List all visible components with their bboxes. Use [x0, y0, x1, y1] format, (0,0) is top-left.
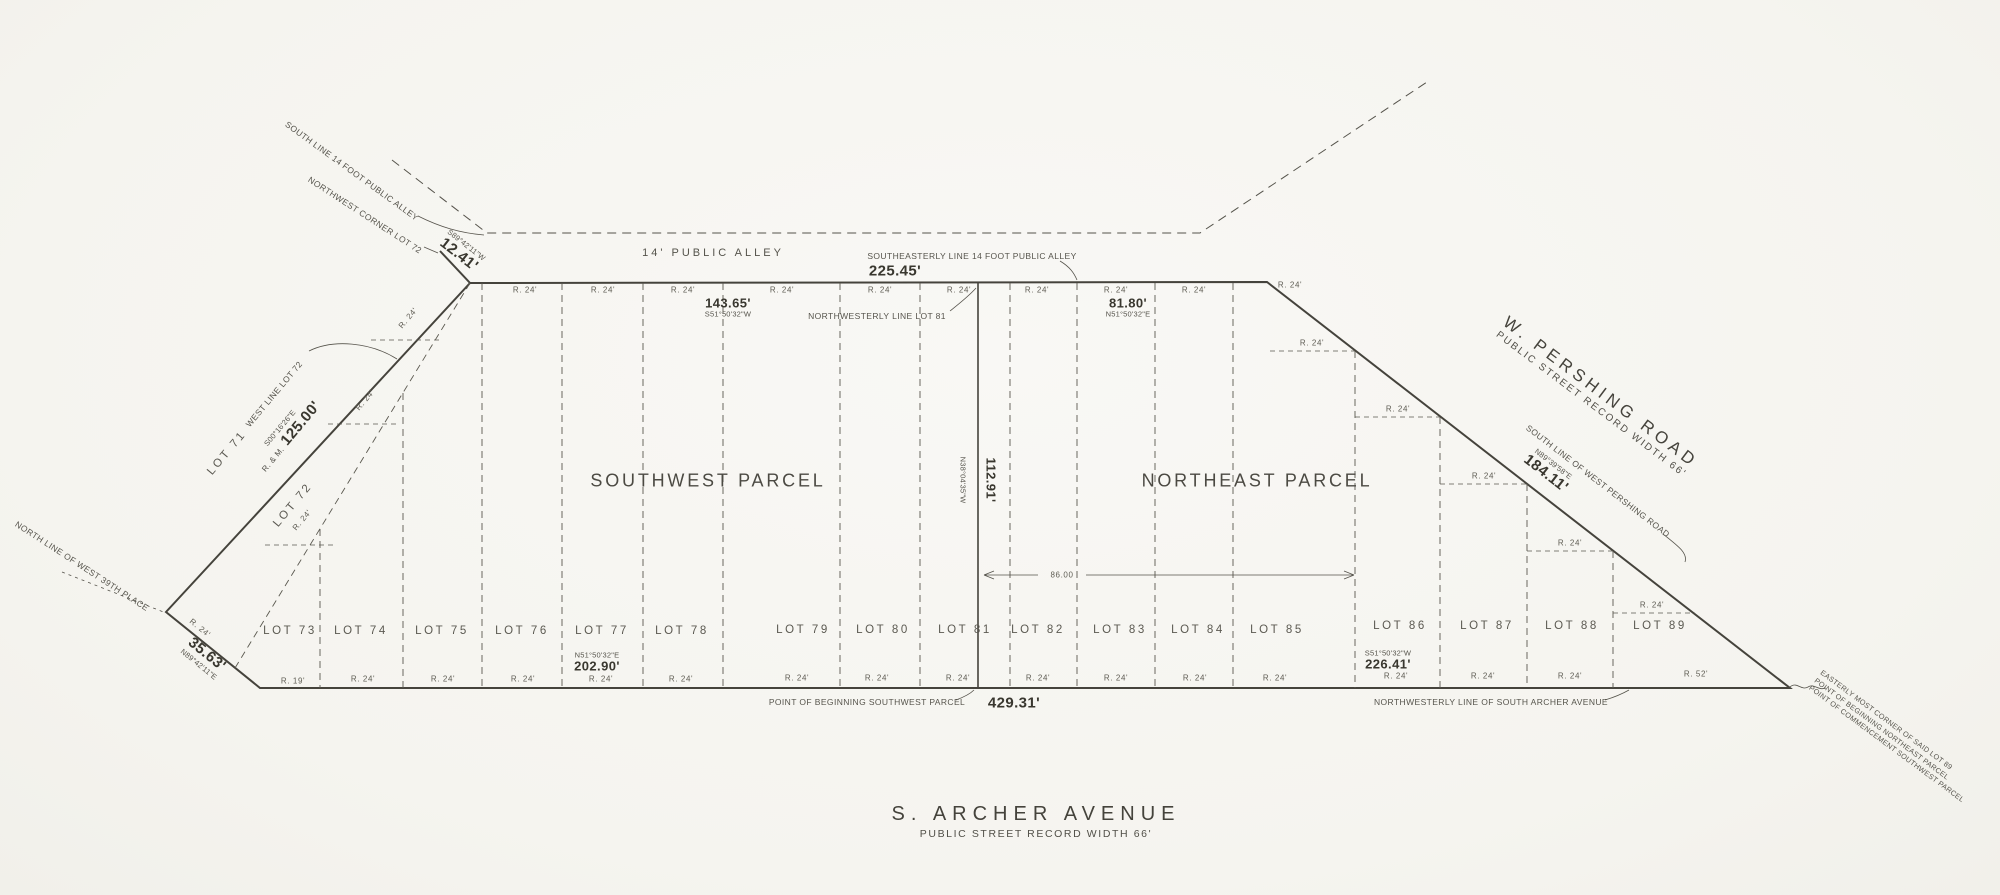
- record-width-tick: R. 52': [1684, 670, 1708, 679]
- lot-label: LOT 86: [1373, 620, 1427, 632]
- record-width-tick: R. 24': [1386, 405, 1410, 414]
- archer-avenue-subtitle: PUBLIC STREET RECORD WIDTH 66': [891, 829, 1180, 841]
- record-width-tick: R. 24': [1026, 674, 1050, 683]
- record-width-tick: R. 24': [1183, 674, 1207, 683]
- record-width-tick: R. 24': [1384, 672, 1408, 681]
- lot-label: LOT 75: [415, 625, 469, 637]
- dim-inner-value: 86.00: [1050, 571, 1073, 580]
- dim-divider-bearing: N38°04'35"W: [959, 457, 968, 504]
- record-width-tick: R. 24': [770, 286, 794, 295]
- record-width-tick: R. 24': [1025, 286, 1049, 295]
- lot-label: LOT 84: [1171, 624, 1225, 636]
- lot-label: LOT 88: [1545, 620, 1599, 632]
- lot-label: LOT 83: [1093, 624, 1147, 636]
- dim-top-northeast: 81.80' N51°50'32"E: [1106, 297, 1151, 320]
- dim-alley-se-value: 225.45': [869, 263, 921, 280]
- dim-bottom-northeast: S51°50'32"W 226.41': [1365, 650, 1411, 673]
- lot-label: LOT 73: [263, 625, 317, 637]
- record-width-tick: R. 19': [281, 677, 305, 686]
- alley-line: [392, 80, 1430, 233]
- note-southeasterly-line-alley: SOUTHEASTERLY LINE 14 FOOT PUBLIC ALLEY: [867, 251, 1076, 261]
- lot-label: LOT 76: [495, 625, 549, 637]
- lot-label: LOT 79: [776, 624, 830, 636]
- archer-avenue-name: S. ARCHER AVENUE: [891, 803, 1180, 825]
- dim-top-northeast-bearing: N51°50'32"E: [1106, 311, 1151, 319]
- record-width-tick: R. 24': [1182, 286, 1206, 295]
- record-width-tick: R. 24': [591, 286, 615, 295]
- record-width-tick: R. 24': [671, 286, 695, 295]
- note-northwesterly-line-archer: NORTHWESTERLY LINE OF SOUTH ARCHER AVENU…: [1374, 697, 1608, 707]
- record-width-tick: R. 24': [868, 286, 892, 295]
- northeast-parcel-label: NORTHEAST PARCEL: [1142, 471, 1373, 492]
- archer-avenue-title: S. ARCHER AVENUE PUBLIC STREET RECORD WI…: [891, 803, 1180, 841]
- dim-top-southwest-bearing: S51°50'32"W: [705, 311, 751, 319]
- record-width-tick: R. 24': [1558, 539, 1582, 548]
- record-width-tick: R. 24': [1104, 286, 1128, 295]
- lot-label: LOT 77: [575, 625, 629, 637]
- dim-top-northeast-value: 81.80': [1106, 297, 1151, 311]
- record-width-tick: R. 24': [1263, 674, 1287, 683]
- dim-bottom-southwest-value: 202.90': [574, 660, 620, 674]
- record-width-tick: R. 24': [1300, 339, 1324, 348]
- lot-label: LOT 89: [1633, 620, 1687, 632]
- record-width-tick: R. 24': [589, 675, 613, 684]
- record-width-tick: R. 24': [669, 675, 693, 684]
- record-width-tick: R. 24': [947, 286, 971, 295]
- record-width-tick: R. 24': [431, 675, 455, 684]
- dim-bottom-northeast-value: 226.41': [1365, 658, 1411, 672]
- record-width-tick: R. 24': [1471, 672, 1495, 681]
- record-width-tick: R. 24': [785, 674, 809, 683]
- record-width-tick: R. 24': [513, 286, 537, 295]
- southwest-parcel-label: SOUTHWEST PARCEL: [590, 471, 825, 492]
- alley-label: 14' PUBLIC ALLEY: [642, 247, 784, 259]
- record-width-tick: R. 24': [865, 674, 889, 683]
- record-width-tick: R. 24': [511, 675, 535, 684]
- note-northwesterly-line-lot81: NORTHWESTERLY LINE LOT 81: [808, 311, 946, 321]
- dim-top-southwest: 143.65' S51°50'32"W: [705, 297, 751, 320]
- lot-label: LOT 80: [856, 624, 910, 636]
- lot-label: LOT 82: [1011, 624, 1065, 636]
- lot-label: LOT 78: [655, 625, 709, 637]
- lot-label: LOT 81: [938, 624, 992, 636]
- record-width-tick: R. 24': [1104, 674, 1128, 683]
- record-width-tick: R. 24': [1558, 672, 1582, 681]
- lot-label: LOT 85: [1250, 624, 1304, 636]
- record-width-tick: R. 24': [351, 675, 375, 684]
- inner-dimension-line: [984, 571, 1354, 579]
- record-width-tick: R. 24': [1640, 601, 1664, 610]
- dim-bottom-total-value: 429.31': [988, 695, 1040, 712]
- dim-top-southwest-value: 143.65': [705, 297, 751, 311]
- dim-bottom-southwest: N51°50'32"E 202.90': [574, 652, 620, 675]
- record-width-tick: R. 24': [946, 674, 970, 683]
- record-width-tick: R. 24': [1472, 472, 1496, 481]
- lot-label: LOT 74: [334, 625, 388, 637]
- dim-divider-value: 112.91': [984, 458, 999, 503]
- record-width-tick: R. 24': [1278, 281, 1302, 290]
- lot-label: LOT 87: [1460, 620, 1514, 632]
- survey-plat: 14' PUBLIC ALLEY W. PERSHING ROAD PUBLIC…: [0, 0, 2000, 895]
- note-point-of-beginning-southwest: POINT OF BEGINNING SOUTHWEST PARCEL: [769, 697, 965, 707]
